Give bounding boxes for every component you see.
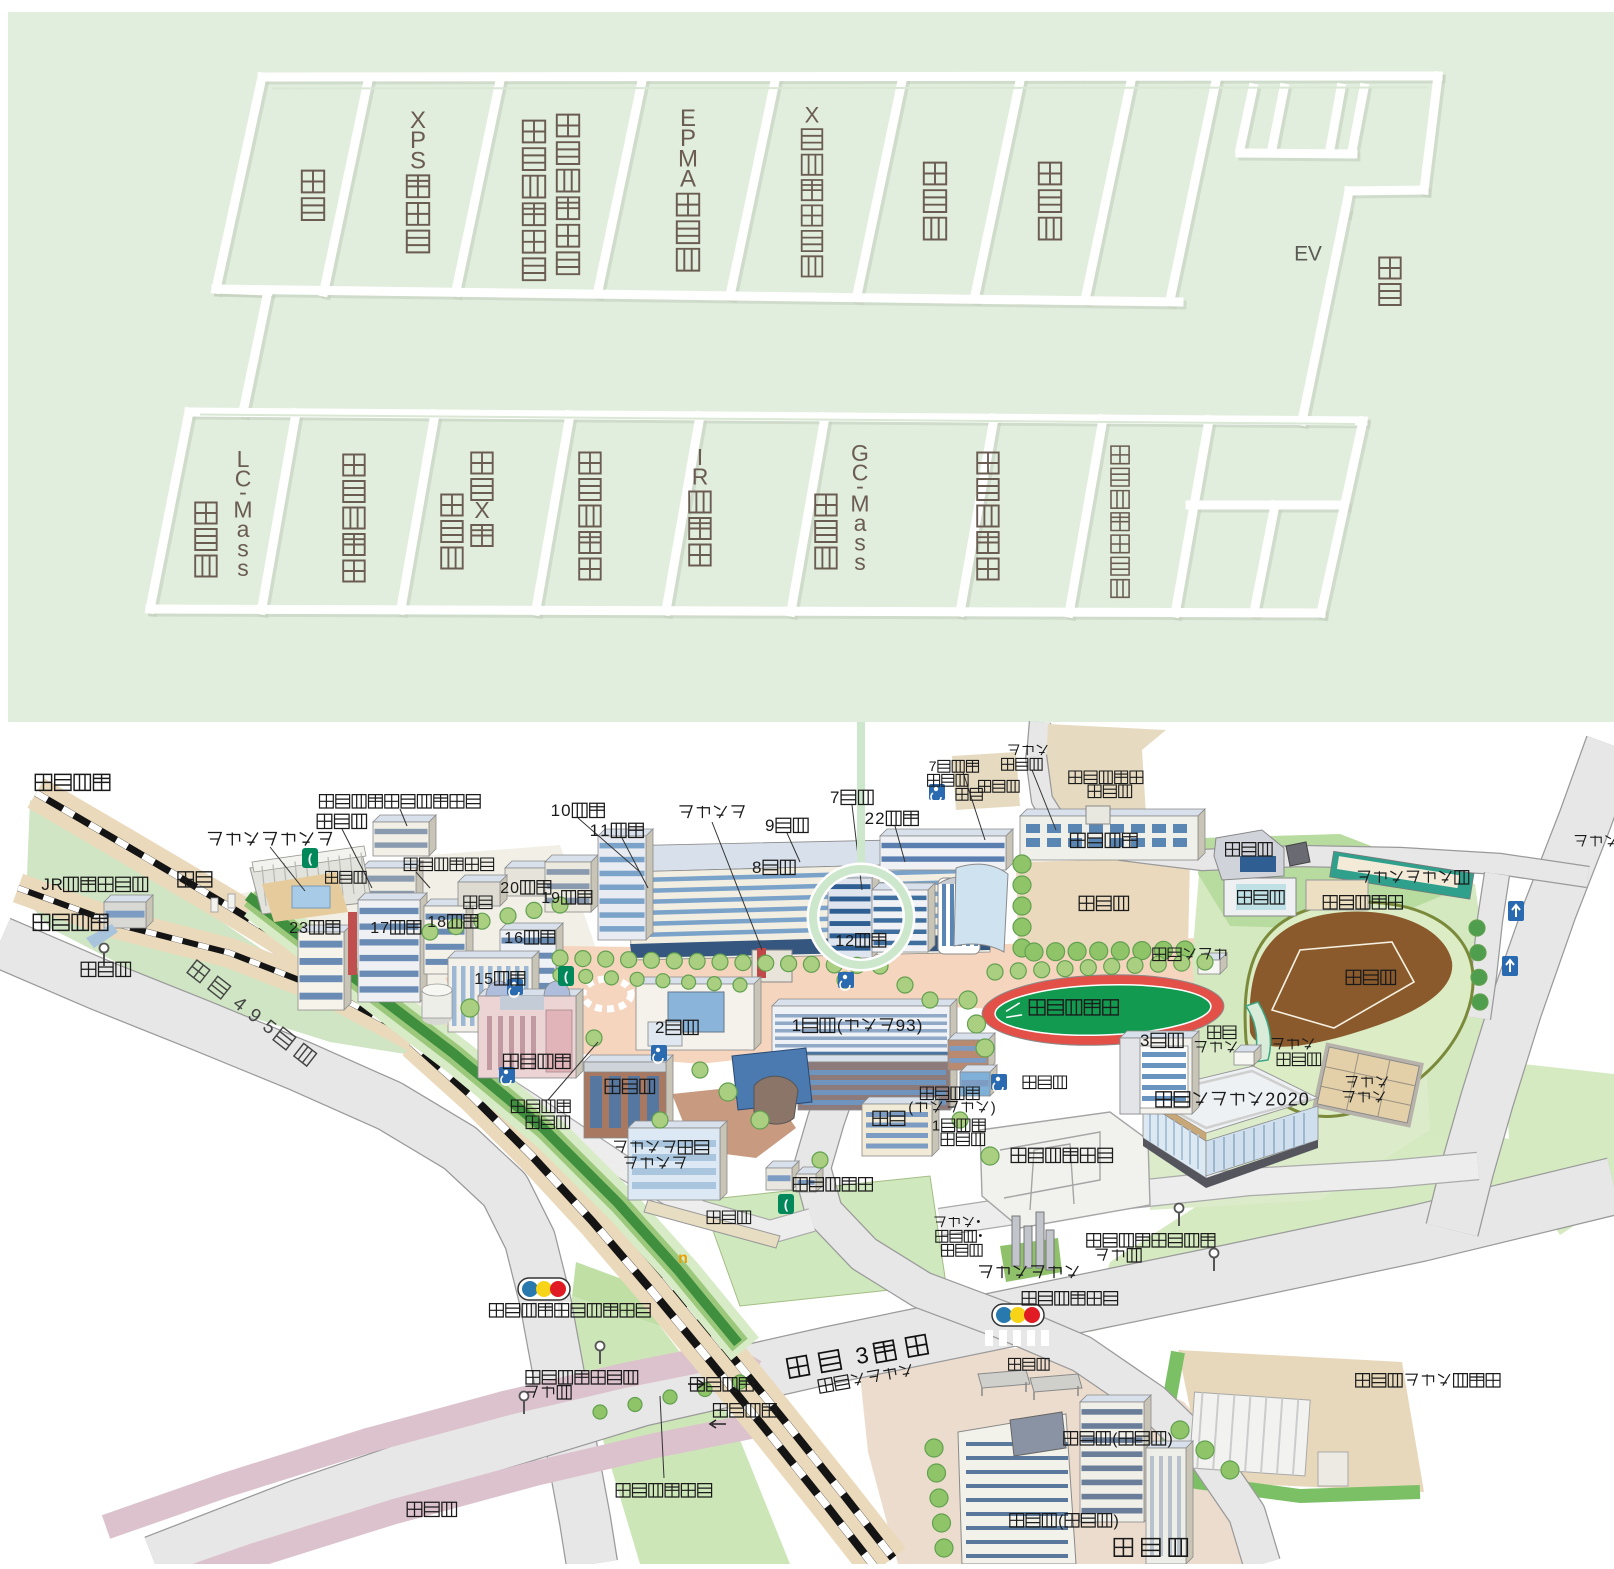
svg-text:2: 2 <box>875 809 884 828</box>
svg-text:X: X <box>805 103 820 128</box>
svg-text:3: 3 <box>299 920 308 937</box>
svg-text:7: 7 <box>830 788 839 807</box>
svg-text:7: 7 <box>380 920 389 937</box>
svg-text:9: 9 <box>896 1016 905 1035</box>
svg-text:2: 2 <box>289 920 298 937</box>
svg-text:1: 1 <box>370 920 379 937</box>
svg-text:(: ( <box>308 851 313 866</box>
svg-text:0: 0 <box>510 880 519 897</box>
svg-text:3: 3 <box>1140 1031 1149 1050</box>
svg-text:2: 2 <box>865 809 874 828</box>
svg-text:1: 1 <box>551 801 560 820</box>
svg-text:5: 5 <box>484 971 493 988</box>
svg-text:X: X <box>474 497 489 523</box>
svg-text:0: 0 <box>1299 1090 1309 1110</box>
svg-text:9: 9 <box>765 816 774 835</box>
svg-text:1: 1 <box>835 933 844 950</box>
svg-text:2: 2 <box>1288 1090 1298 1110</box>
svg-text:(: ( <box>1058 1513 1064 1530</box>
svg-text:(: ( <box>784 1197 789 1212</box>
svg-text:): ) <box>991 1099 996 1116</box>
svg-text:): ) <box>917 1016 923 1035</box>
svg-text:(: ( <box>908 1099 913 1116</box>
svg-text:9: 9 <box>551 890 560 907</box>
svg-text:A: A <box>680 166 696 193</box>
svg-text:V: V <box>1308 243 1322 266</box>
svg-text:7: 7 <box>929 758 937 774</box>
svg-text:2: 2 <box>655 1018 664 1037</box>
svg-text:2: 2 <box>1265 1090 1275 1110</box>
svg-text:R: R <box>692 464 709 490</box>
svg-text:E: E <box>1294 243 1308 266</box>
svg-text:0: 0 <box>1276 1090 1286 1110</box>
svg-text:(: ( <box>564 969 569 984</box>
svg-text:1: 1 <box>932 1117 940 1134</box>
svg-text:): ) <box>1168 1431 1173 1448</box>
svg-text:1: 1 <box>541 890 550 907</box>
svg-text:1: 1 <box>792 1016 801 1035</box>
svg-text:J: J <box>41 875 50 894</box>
svg-text:1: 1 <box>474 971 483 988</box>
svg-text:n: n <box>678 1250 688 1267</box>
svg-text:8: 8 <box>752 858 761 877</box>
svg-text:(: ( <box>837 1016 843 1035</box>
svg-text:8: 8 <box>437 914 446 931</box>
svg-text:3: 3 <box>906 1016 915 1035</box>
svg-text:S: S <box>410 147 426 174</box>
svg-text:6: 6 <box>514 930 523 947</box>
svg-text:1: 1 <box>504 930 513 947</box>
svg-text:R: R <box>51 875 63 894</box>
svg-text:): ) <box>1114 1513 1119 1530</box>
svg-text:1: 1 <box>427 914 436 931</box>
svg-text:1: 1 <box>590 821 599 840</box>
svg-text:1: 1 <box>600 821 609 840</box>
svg-text:2: 2 <box>845 933 854 950</box>
svg-text:(: ( <box>1112 1431 1118 1448</box>
svg-text:0: 0 <box>561 801 570 820</box>
svg-text:s: s <box>854 549 866 575</box>
svg-text:s: s <box>237 555 249 581</box>
svg-text:2: 2 <box>500 880 509 897</box>
